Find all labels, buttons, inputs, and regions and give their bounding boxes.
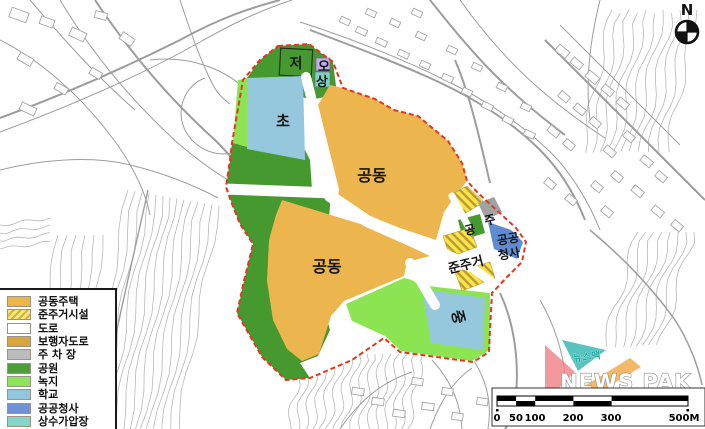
scale-label-0: 0 [494, 413, 501, 424]
legend-swatch-pedestrian-road [7, 336, 31, 347]
legend-swatch-park [7, 363, 31, 374]
legend-swatch-apartment [7, 296, 31, 307]
legend-label: 공공청사 [38, 403, 78, 414]
legend-swatch-public-office [7, 403, 31, 414]
legend-swatch-school [7, 389, 31, 400]
legend-item: 상수가압장 [7, 415, 110, 428]
legend: 공동주택 준주거시설 도로 보행자도로 주 차 장 공원 녹지 학교 공공청사 … [0, 288, 117, 429]
legend-label: 학교 [38, 389, 58, 400]
legend-swatch-water-station [7, 416, 31, 427]
legend-item: 도로 [7, 322, 110, 335]
legend-label: 공원 [38, 363, 58, 374]
scale-label-500m: 500M [669, 413, 700, 424]
legend-label: 상수가압장 [38, 416, 89, 427]
legend-label: 보행자도로 [38, 336, 89, 347]
legend-item: 준주거시설 [7, 308, 110, 321]
label-elementary: 초 [276, 112, 290, 130]
legend-label: 주 차 장 [38, 349, 76, 360]
legend-item: 공공청사 [7, 401, 110, 414]
legend-label: 도로 [38, 323, 58, 334]
label-water-station: 상 [316, 75, 328, 90]
legend-label: 공동주택 [38, 296, 78, 307]
news-map-image: 저 오 상 초 공동 공동 준주거 공 주 공공 청사 중 N 뉴스팩 NEWS… [0, 0, 705, 429]
legend-item: 공원 [7, 361, 110, 374]
legend-item: 보행자도로 [7, 335, 110, 348]
legend-swatch-semi-residential [7, 309, 31, 320]
scale-label-50: 50 [509, 413, 523, 424]
scale-label-200: 200 [563, 413, 584, 424]
label-apartment-lower: 공동 [312, 257, 342, 276]
legend-swatch-parking [7, 349, 31, 360]
scale-label-300: 300 [601, 413, 622, 424]
legend-item: 학교 [7, 388, 110, 401]
legend-item: 주 차 장 [7, 348, 110, 361]
compass-north-label: N [681, 1, 694, 19]
scale-bar: 0 50 100 200 300 500M [492, 388, 705, 426]
label-apartment-upper: 공동 [357, 166, 387, 185]
legend-swatch-greenery [7, 376, 31, 387]
legend-item: 공동주택 [7, 295, 110, 308]
legend-swatch-road [7, 323, 31, 334]
scale-label-100: 100 [525, 413, 546, 424]
label-sewage-pump: 오 [318, 60, 330, 75]
label-detention: 저 [290, 56, 303, 72]
legend-label: 준주거시설 [38, 309, 89, 320]
legend-item: 녹지 [7, 375, 110, 388]
legend-label: 녹지 [38, 376, 58, 387]
